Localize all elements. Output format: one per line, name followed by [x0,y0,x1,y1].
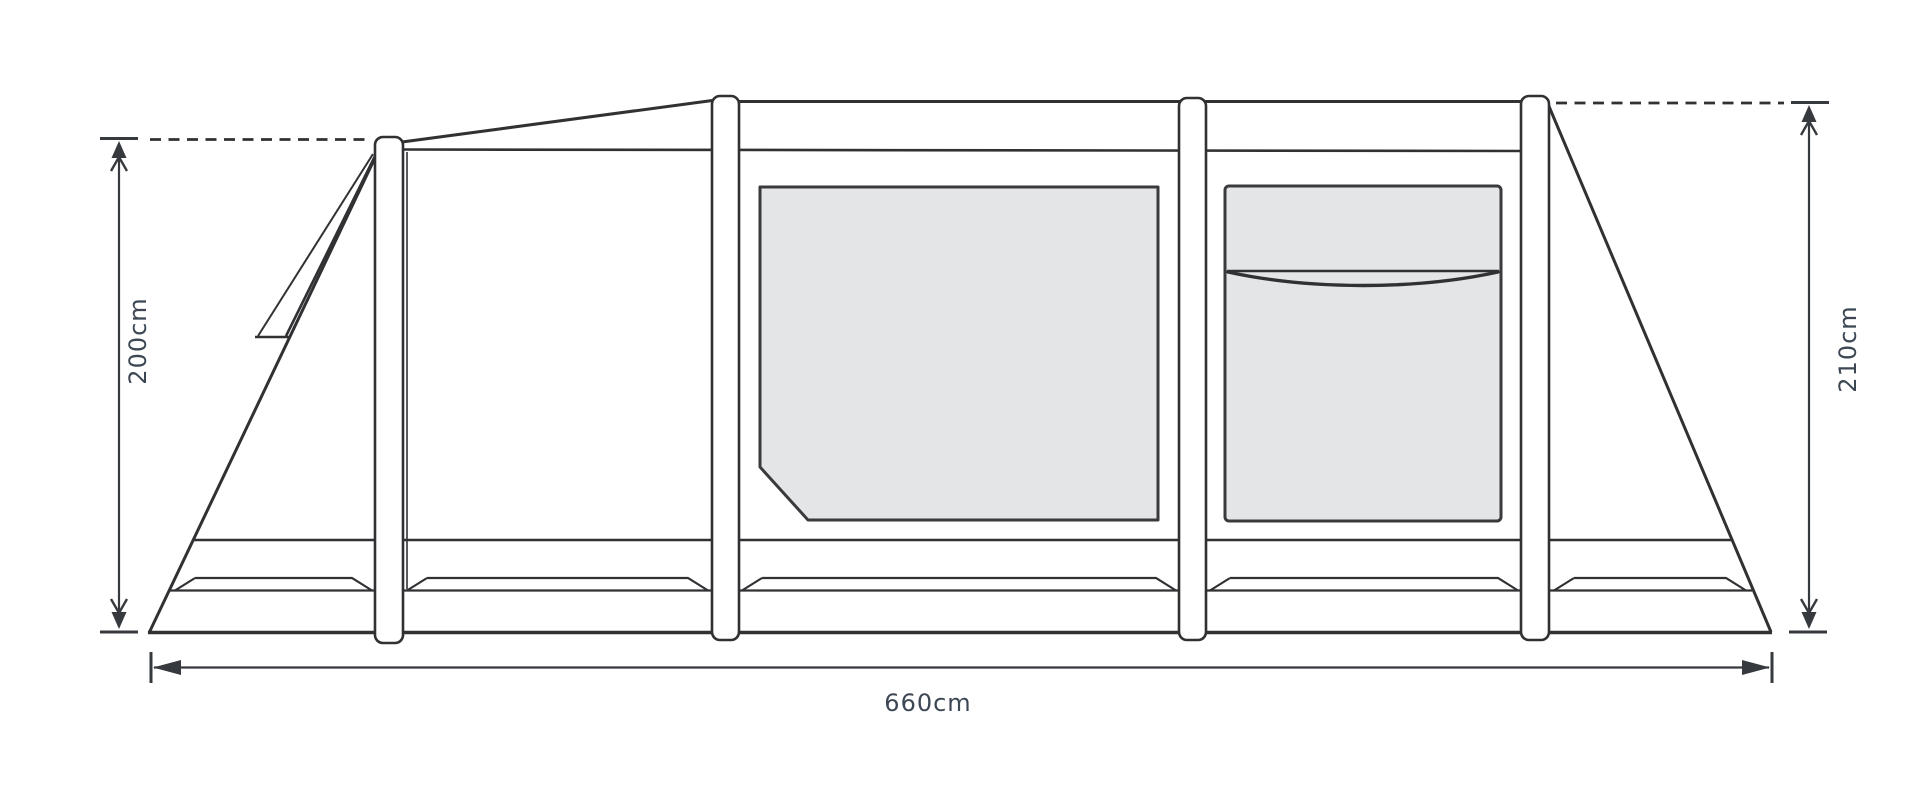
door-panel-fabric [1225,186,1501,521]
total-length-label: 660cm [884,689,971,717]
tent-body [148,96,1772,643]
tent-dimension-diagram: 200cm 210cm 660cm [0,0,1920,793]
diagram-canvas: 200cm 210cm 660cm [0,0,1920,793]
pole-2 [712,96,739,640]
guy-rope-line [286,150,378,336]
skirt-bay-4 [1554,578,1746,591]
eave-seam-line [402,150,1523,152]
dimension-left-height: 200cm [100,139,152,633]
pole-4 [1521,96,1549,640]
dimension-right-height: 210cm [1789,103,1862,633]
skirt-bay-1 [407,578,708,591]
right-slope-edge [1548,104,1771,632]
skirt-bay-2 [742,578,1176,591]
pole-3 [1179,98,1206,640]
skirt-bay-0 [175,578,372,591]
left-height-label: 200cm [124,297,152,384]
dim-bottom-arrow-right [1742,660,1770,675]
left-slope-edge [149,141,383,633]
skirt-bay-3 [1210,578,1518,591]
right-height-label: 210cm [1834,305,1862,392]
door-panel [1225,186,1501,521]
roof-rising-edge [402,100,716,142]
dimension-total-length: 660cm [151,652,1772,717]
guy-rope [255,150,378,337]
guy-rope-inner-line [258,154,373,336]
dim-bottom-arrow-left [153,660,181,675]
pole-1 [375,137,403,643]
large-window-panel [760,187,1158,520]
